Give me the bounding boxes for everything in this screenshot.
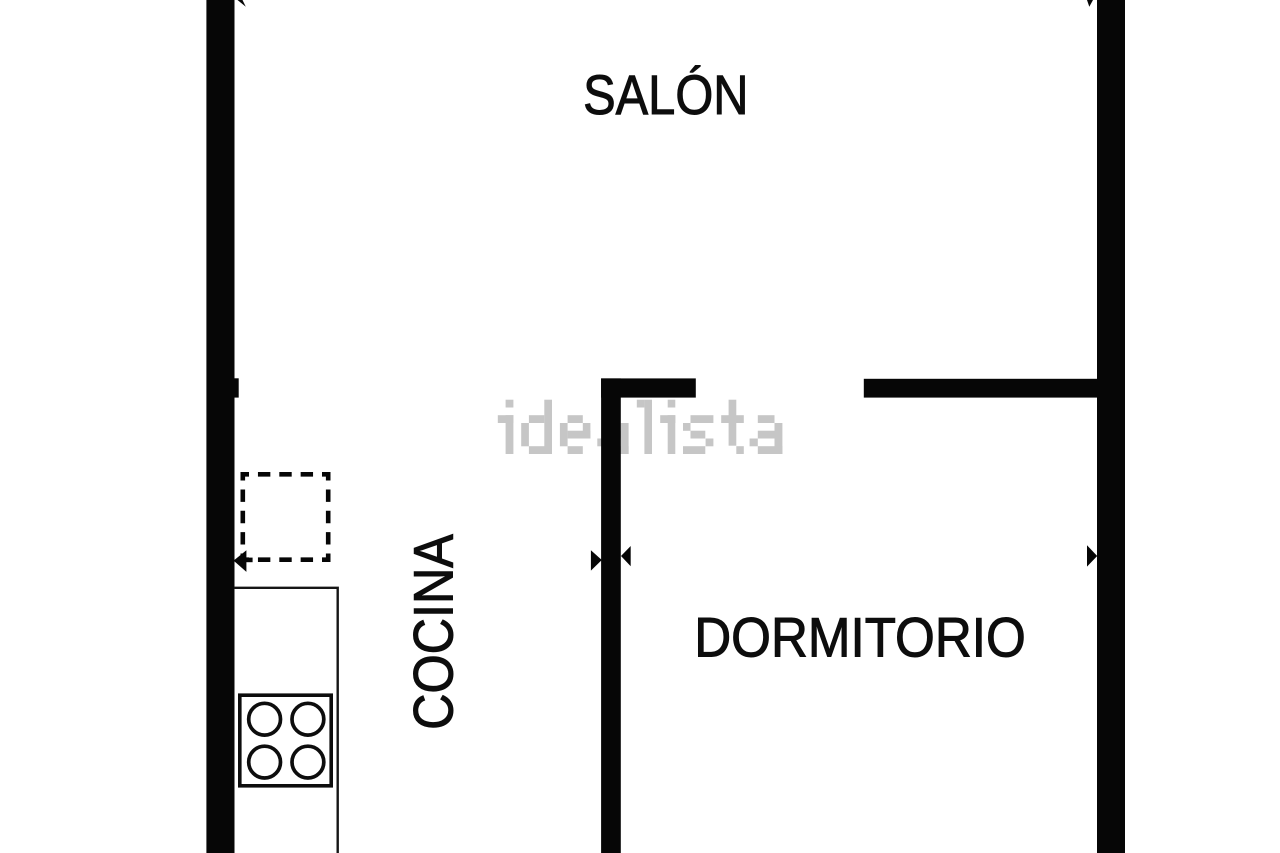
svg-text:SALÓN: SALÓN: [583, 65, 748, 127]
svg-text:DORMITORIO: DORMITORIO: [694, 608, 1026, 669]
svg-text:COCINA: COCINA: [403, 534, 465, 730]
